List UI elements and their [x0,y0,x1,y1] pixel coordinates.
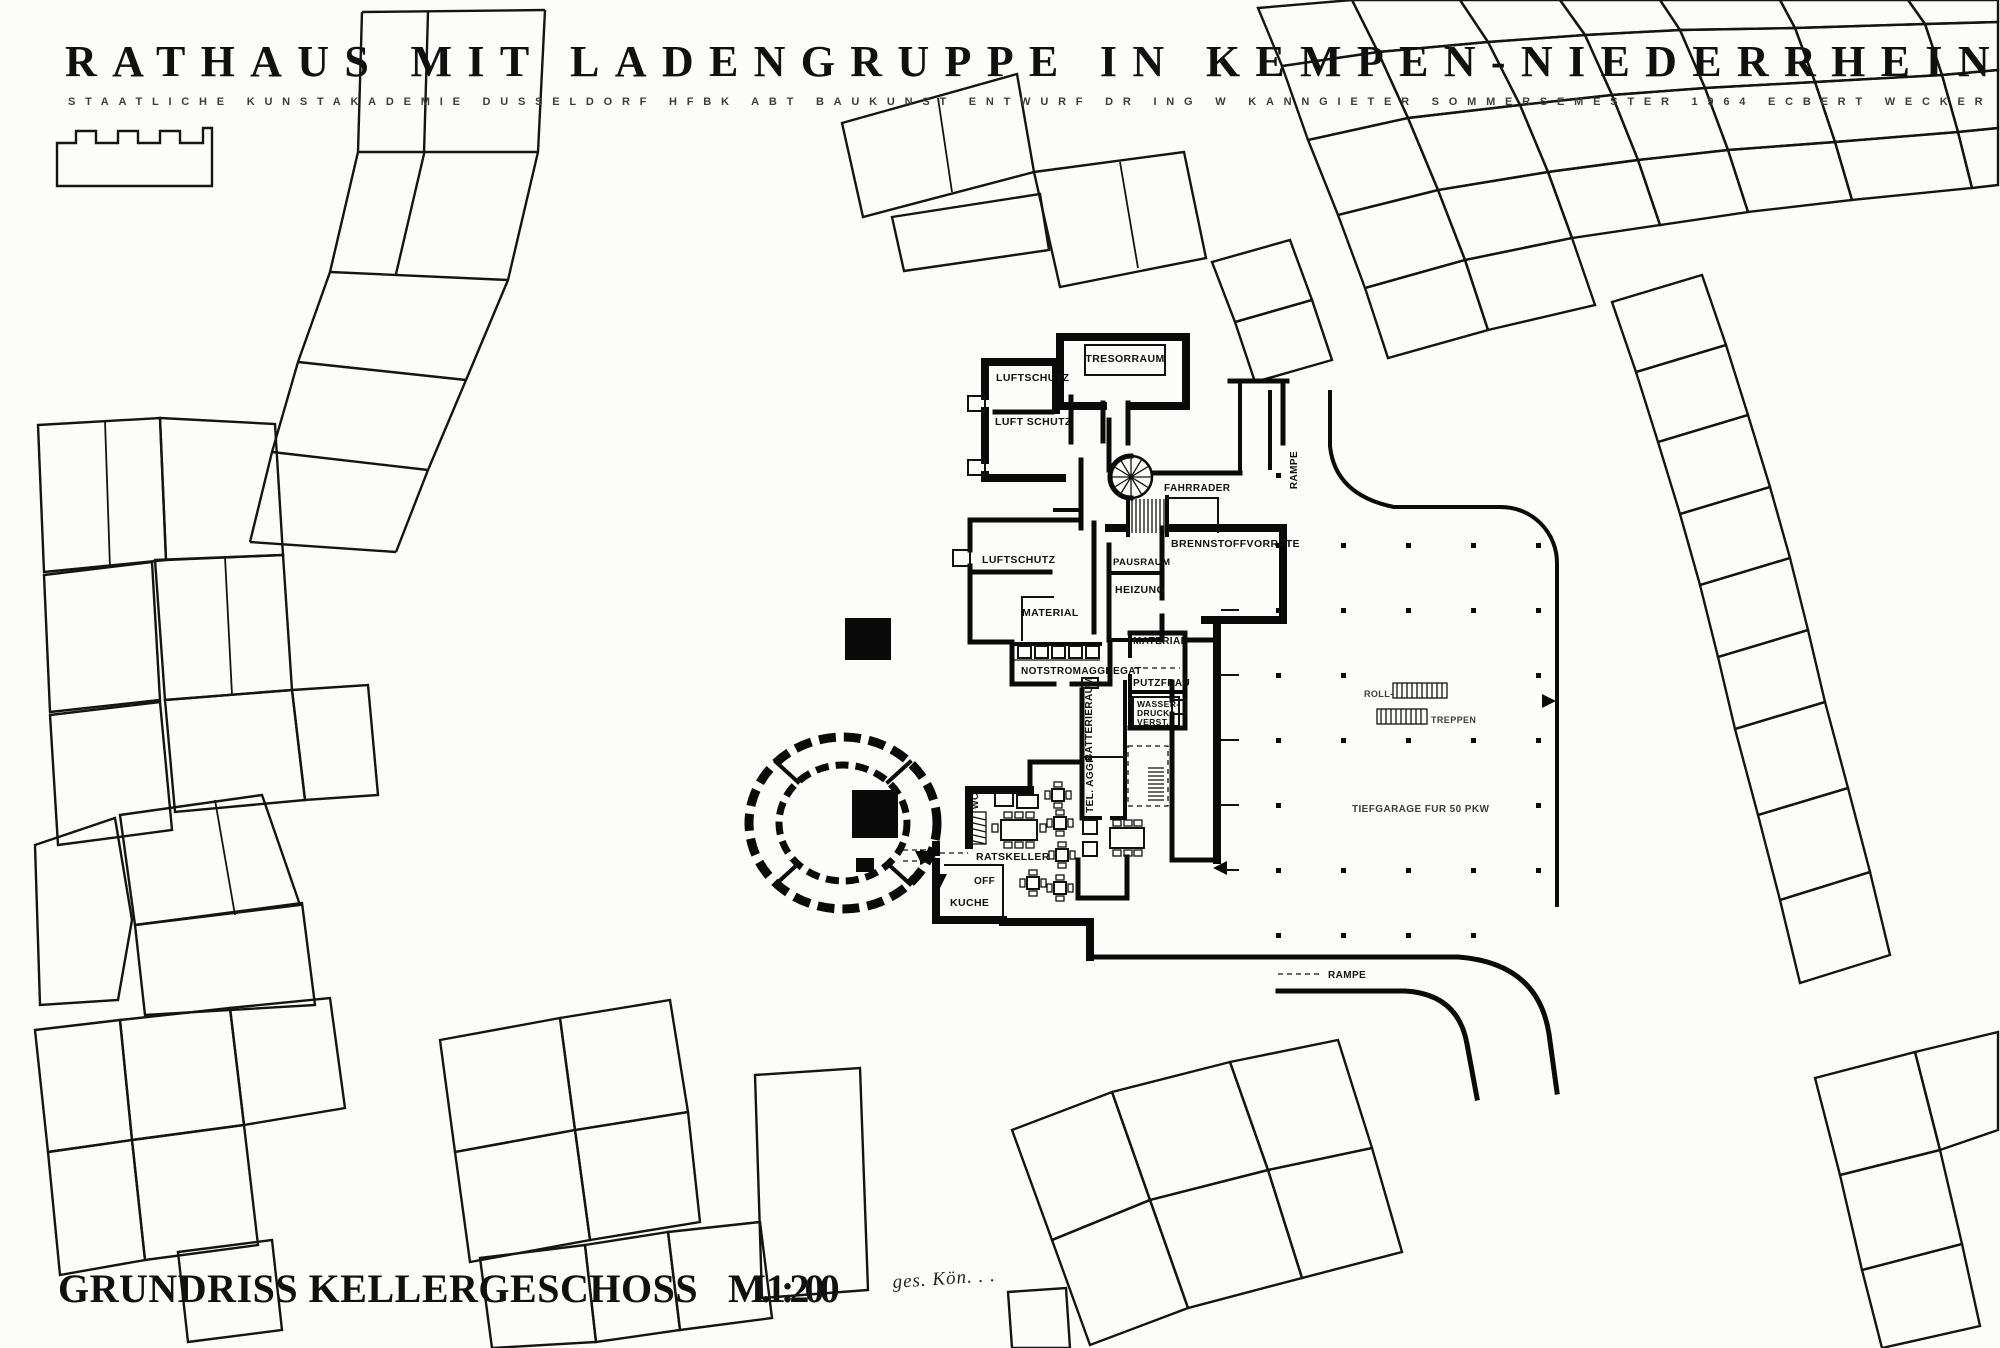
solid-block [845,618,891,660]
label-rampe-top: RAMPE [1289,451,1300,489]
site-buildings [35,0,1998,1348]
room-label-batterieraum: BATTERIERAUM [1084,677,1095,761]
round-table-icon [1020,870,1046,896]
room-label-luftschutz: LUFTSCHUTZ [982,554,1056,566]
street-strip-upper-left [250,10,545,552]
label-tiefgarage: TIEFGARAGE FUR 50 PKW [1352,804,1489,815]
room-label-off: OFF [974,876,995,887]
drawing-sheet: RATHAUS MIT LADENGRUPPE IN KEMPEN-NIEDER… [0,0,2000,1348]
stairs-icon [1377,709,1427,724]
escalator-icon [1393,683,1447,698]
garage-columns [1276,473,1541,938]
room-label-material: MATERIAL [1022,607,1079,619]
garage [1090,392,1557,1098]
room-label-material: MATERIAL [1133,636,1187,647]
block-cluster-bottom-center [1012,1040,1402,1345]
label-rampe-bottom: RAMPE [1328,970,1366,981]
round-table-icon [1047,875,1073,901]
round-table-icon [1049,842,1075,868]
block-chain-right [1612,275,1890,983]
room-label-wasserdruck: VERST. [1137,717,1169,727]
page-title: RATHAUS MIT LADENGRUPPE IN KEMPEN-NIEDER… [65,37,1990,86]
room-label-luftschutz: LUFT SCHUTZ [995,416,1072,428]
label-treppen: TREPPEN [1431,715,1476,725]
site-plan-svg: RATHAUS MIT LADENGRUPPE IN KEMPEN-NIEDER… [0,0,2000,1348]
round-table-icon [1047,810,1073,836]
room-label-notstromaggregat: NOTSTROMAGGREGAT [1021,666,1142,677]
label-rolltreppe: ROLL- [1364,689,1394,699]
room-label-pausraum: PAUSRAUM [1113,557,1170,568]
room-label-tresorraum: TRESORRAUM [1085,353,1164,365]
labels: RATHAUS MIT LADENGRUPPE IN KEMPEN-NIEDER… [58,37,1990,1311]
room-label-brennstoffvorraete: BRENNSTOFFVORRATE [1171,538,1300,550]
signature: ges. Kön. . . [892,1265,996,1293]
block-bottom-right [1815,1032,1998,1348]
block-cluster-left [35,418,378,1015]
spiral-stair-icon [1110,456,1152,498]
room-label-wc: WC [970,793,981,810]
room-label-heizung: HEIZUNG [1115,584,1165,596]
room-label-putzfrau: PUTZFRAU [1133,678,1190,689]
room-label-tel-aggr: TEL. AGGR [1085,755,1096,813]
tower-footprint [749,737,947,909]
long-table-icon [1110,820,1144,856]
room-label-fahrraeder: FAHRRADER [1164,483,1231,494]
stepped-building-outline [57,128,212,186]
dashed-stair-icon [1128,746,1168,806]
plan-title: GRUNDRISS KELLERGESCHOSS [58,1266,698,1311]
room-label-kueche: KUCHE [950,897,989,909]
page-subtitle: STAATLICHE KUNSTAKADEMIE DUSSELDORF HFBK… [68,96,1983,108]
generator-units-icon [1014,644,1100,660]
direction-arrow-icon [1542,694,1556,708]
round-table-icon [1045,782,1071,808]
long-table-icon [992,812,1046,848]
room-label-luftschutz: LUFTSCHUTZ [996,372,1070,384]
plan-scale: M.1:200 [728,1266,840,1311]
room-label-ratskeller: RATSKELLER [976,851,1050,863]
solid-core [852,790,898,838]
main-building-walls [920,337,1287,957]
ratskeller-furniture [992,782,1144,901]
